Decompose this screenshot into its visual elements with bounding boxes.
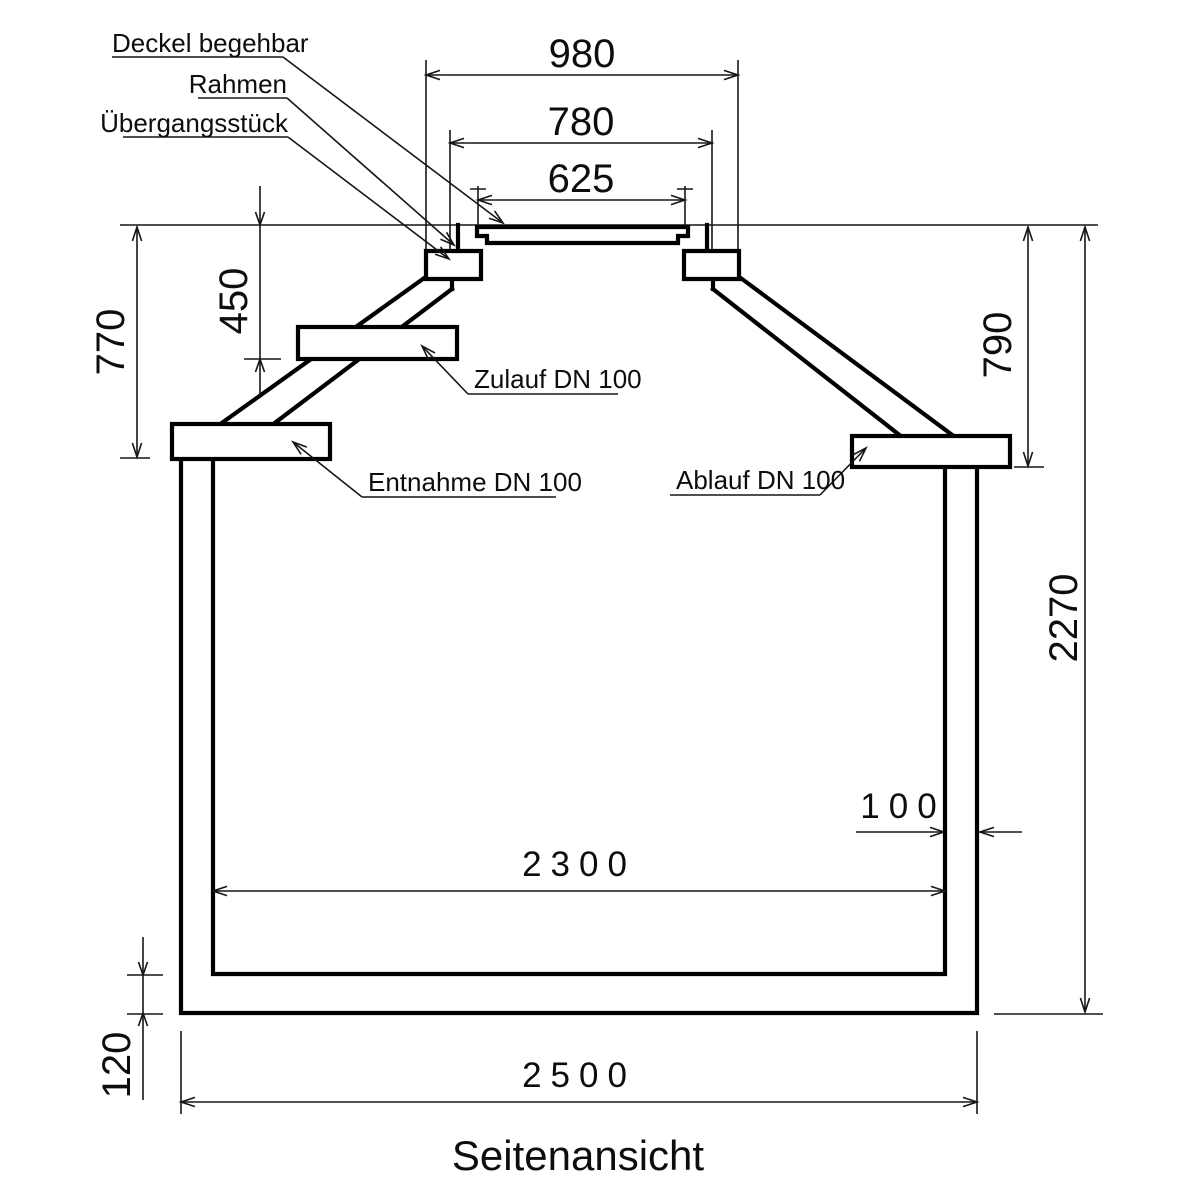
label-deckel-begehbar: Deckel begehbar (112, 28, 309, 58)
dim-text-770: 770 (89, 309, 133, 376)
dim-text-100: 100 (860, 787, 945, 826)
ticks-120 (127, 975, 163, 1014)
dim-text-2500: 2500 (522, 1056, 636, 1095)
entnahme-flange (172, 424, 330, 459)
leader-rahmen (287, 98, 454, 245)
dim-text-625: 625 (548, 157, 615, 201)
leader-deckel (283, 57, 503, 223)
ablauf-flange (852, 436, 1010, 467)
tank-outer-wall (181, 458, 977, 1013)
leader-uebergangsstueck (288, 137, 449, 259)
label-uebergangsstueck: Übergangsstück (100, 108, 289, 138)
dim-text-120: 120 (95, 1032, 139, 1099)
drawing-title: Seitenansicht (452, 1132, 704, 1179)
dim-text-780: 780 (548, 100, 615, 144)
transition-piece-left (426, 251, 481, 279)
dim-text-2300: 2300 (522, 845, 636, 884)
right-shoulder-inner-line (713, 289, 902, 437)
label-entnahme: Entnahme DN 100 (368, 467, 582, 497)
dim-text-450: 450 (212, 268, 256, 335)
dim-text-980: 980 (549, 32, 616, 76)
dim-text-790: 790 (976, 312, 1020, 379)
label-ablauf: Ablauf DN 100 (676, 465, 845, 495)
zulauf-flange (298, 327, 457, 359)
technical-drawing-side-view: 980 780 625 770 450 790 2270 100 2300 12… (0, 0, 1200, 1200)
label-rahmen: Rahmen (189, 69, 287, 99)
right-shoulder-outer-line (738, 276, 955, 437)
dim-text-2270: 2270 (1042, 574, 1086, 663)
tank-inner-wall (213, 458, 945, 974)
transition-piece-right (684, 251, 739, 279)
lid (477, 227, 688, 243)
drawing-canvas: 980 780 625 770 450 790 2270 100 2300 12… (0, 0, 1200, 1200)
label-zulauf: Zulauf DN 100 (474, 364, 642, 394)
